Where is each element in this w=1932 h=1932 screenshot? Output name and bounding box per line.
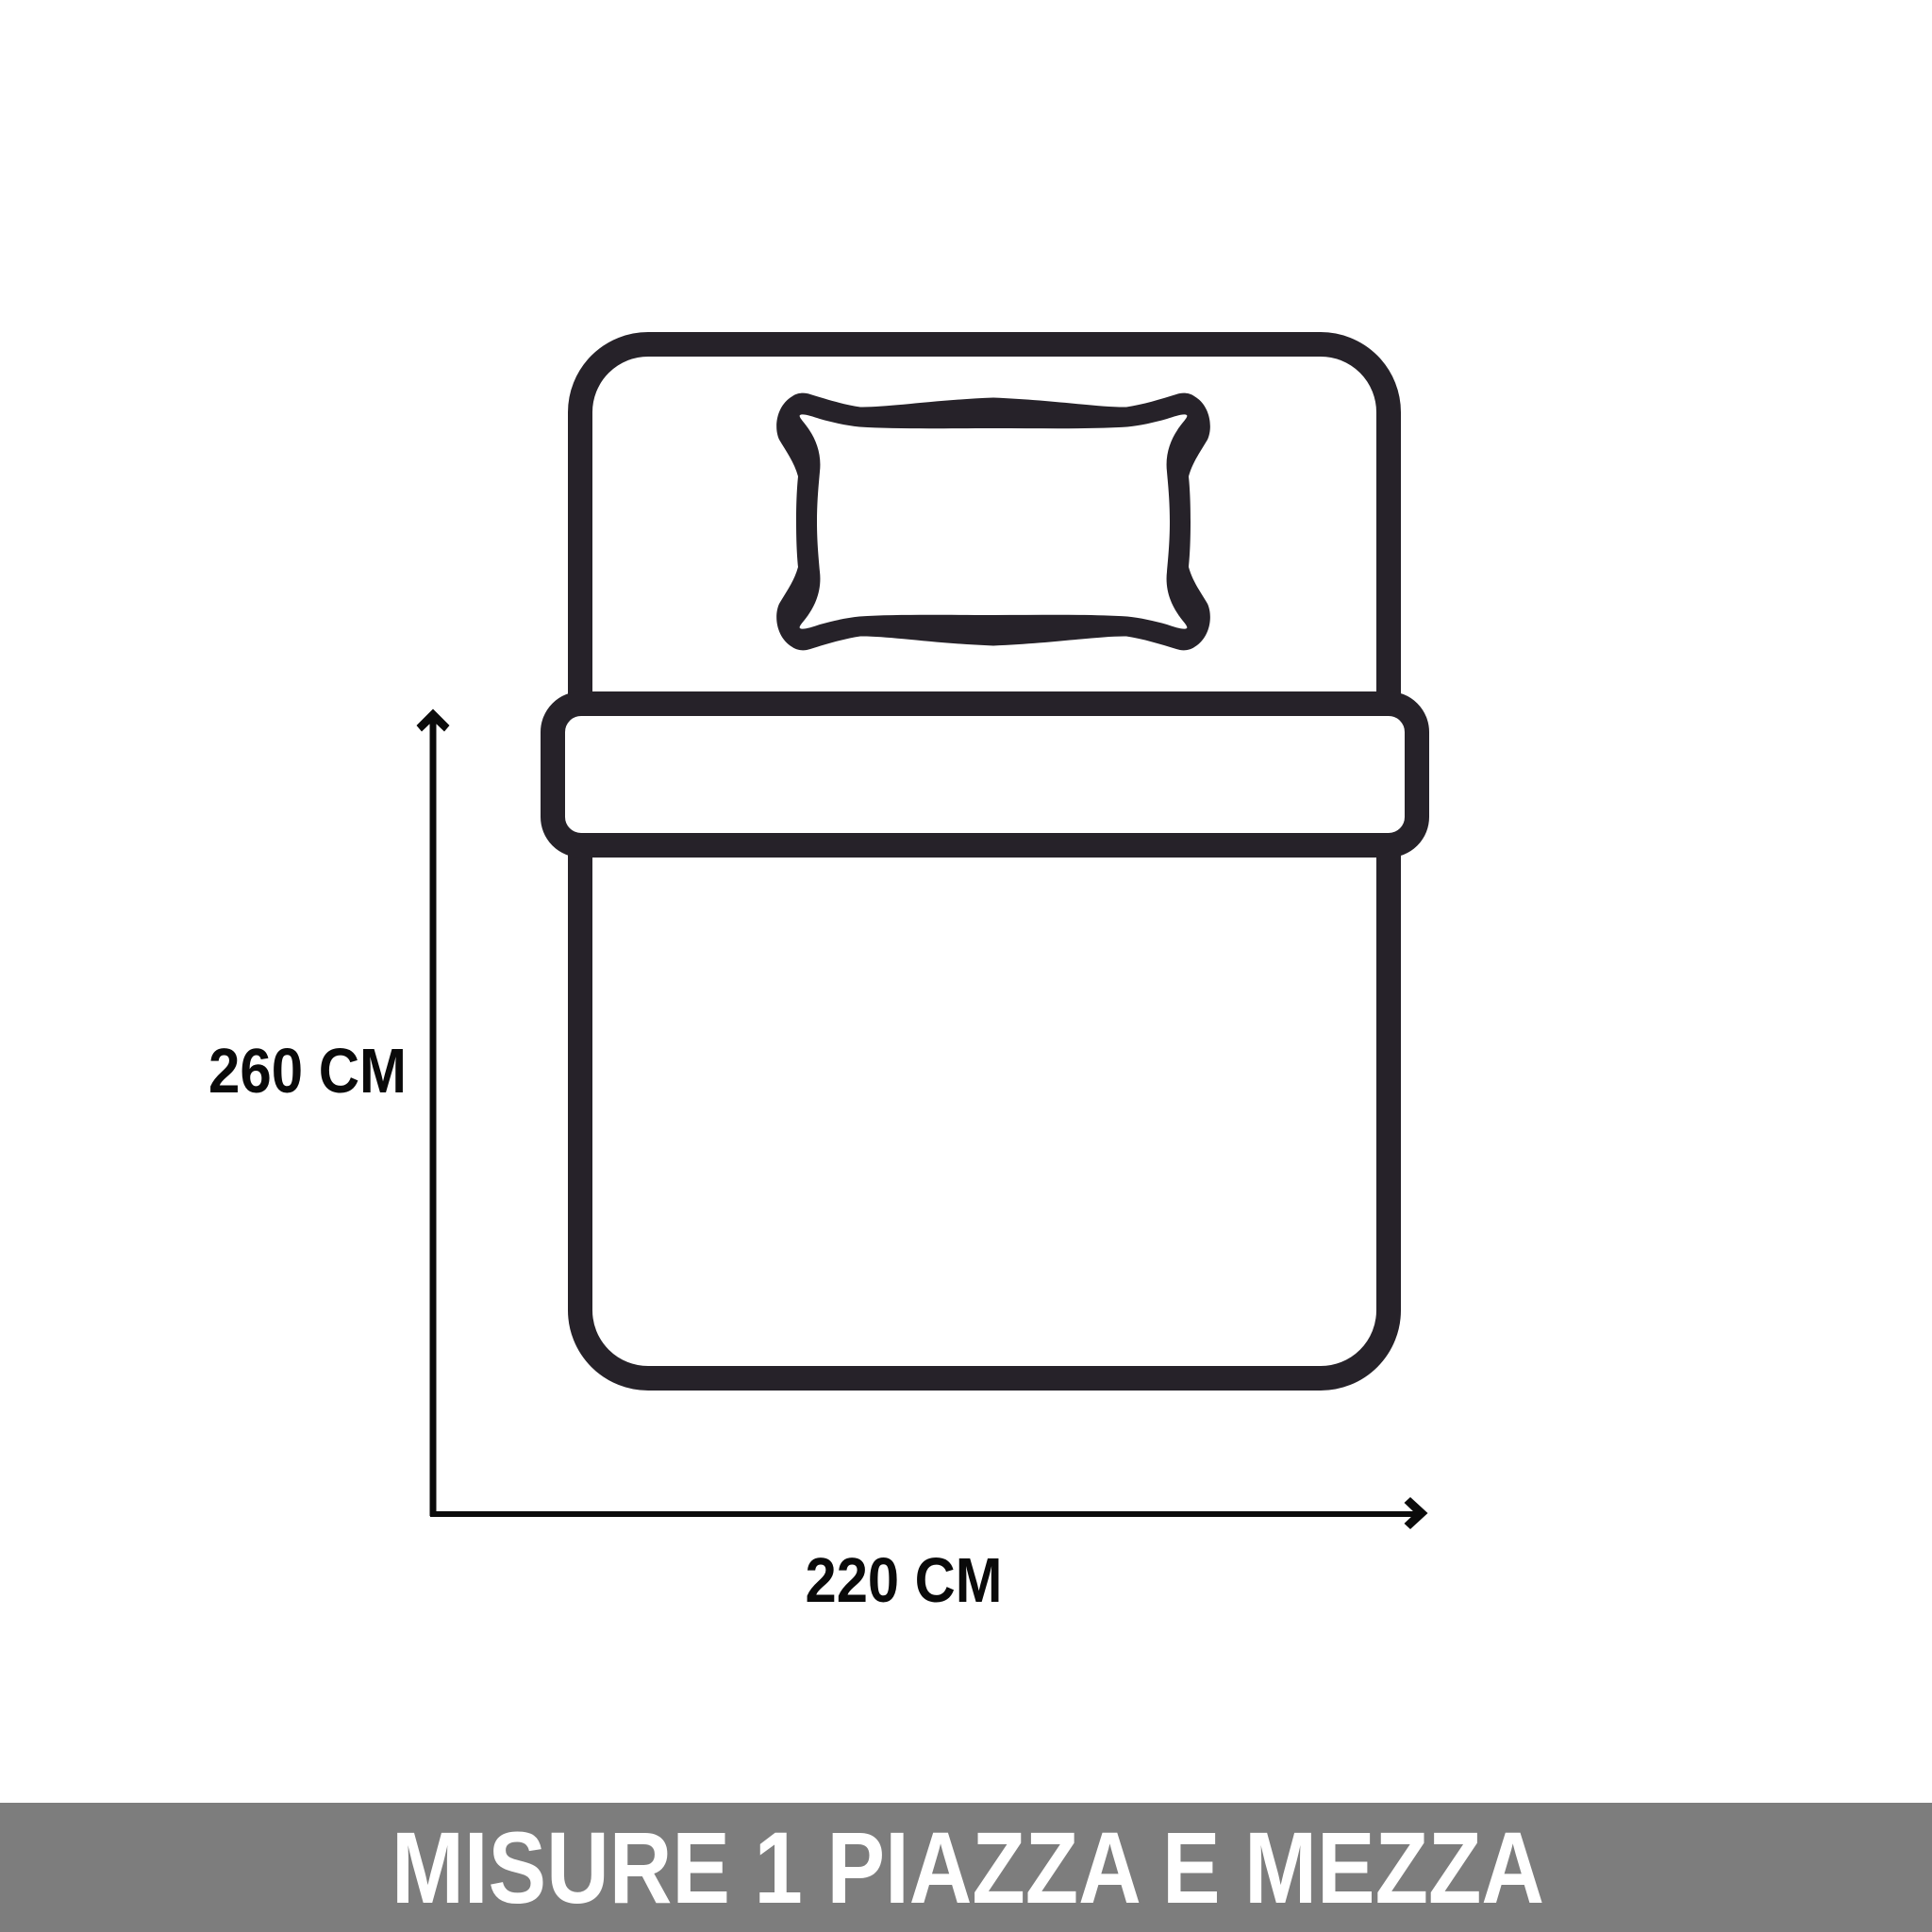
svg-text:220 CM: 220 CM [806, 1545, 1003, 1616]
svg-text:MISURE 1 PIAZZA E MEZZA: MISURE 1 PIAZZA E MEZZA [391, 1810, 1544, 1924]
svg-text:260 CM: 260 CM [208, 1036, 407, 1107]
